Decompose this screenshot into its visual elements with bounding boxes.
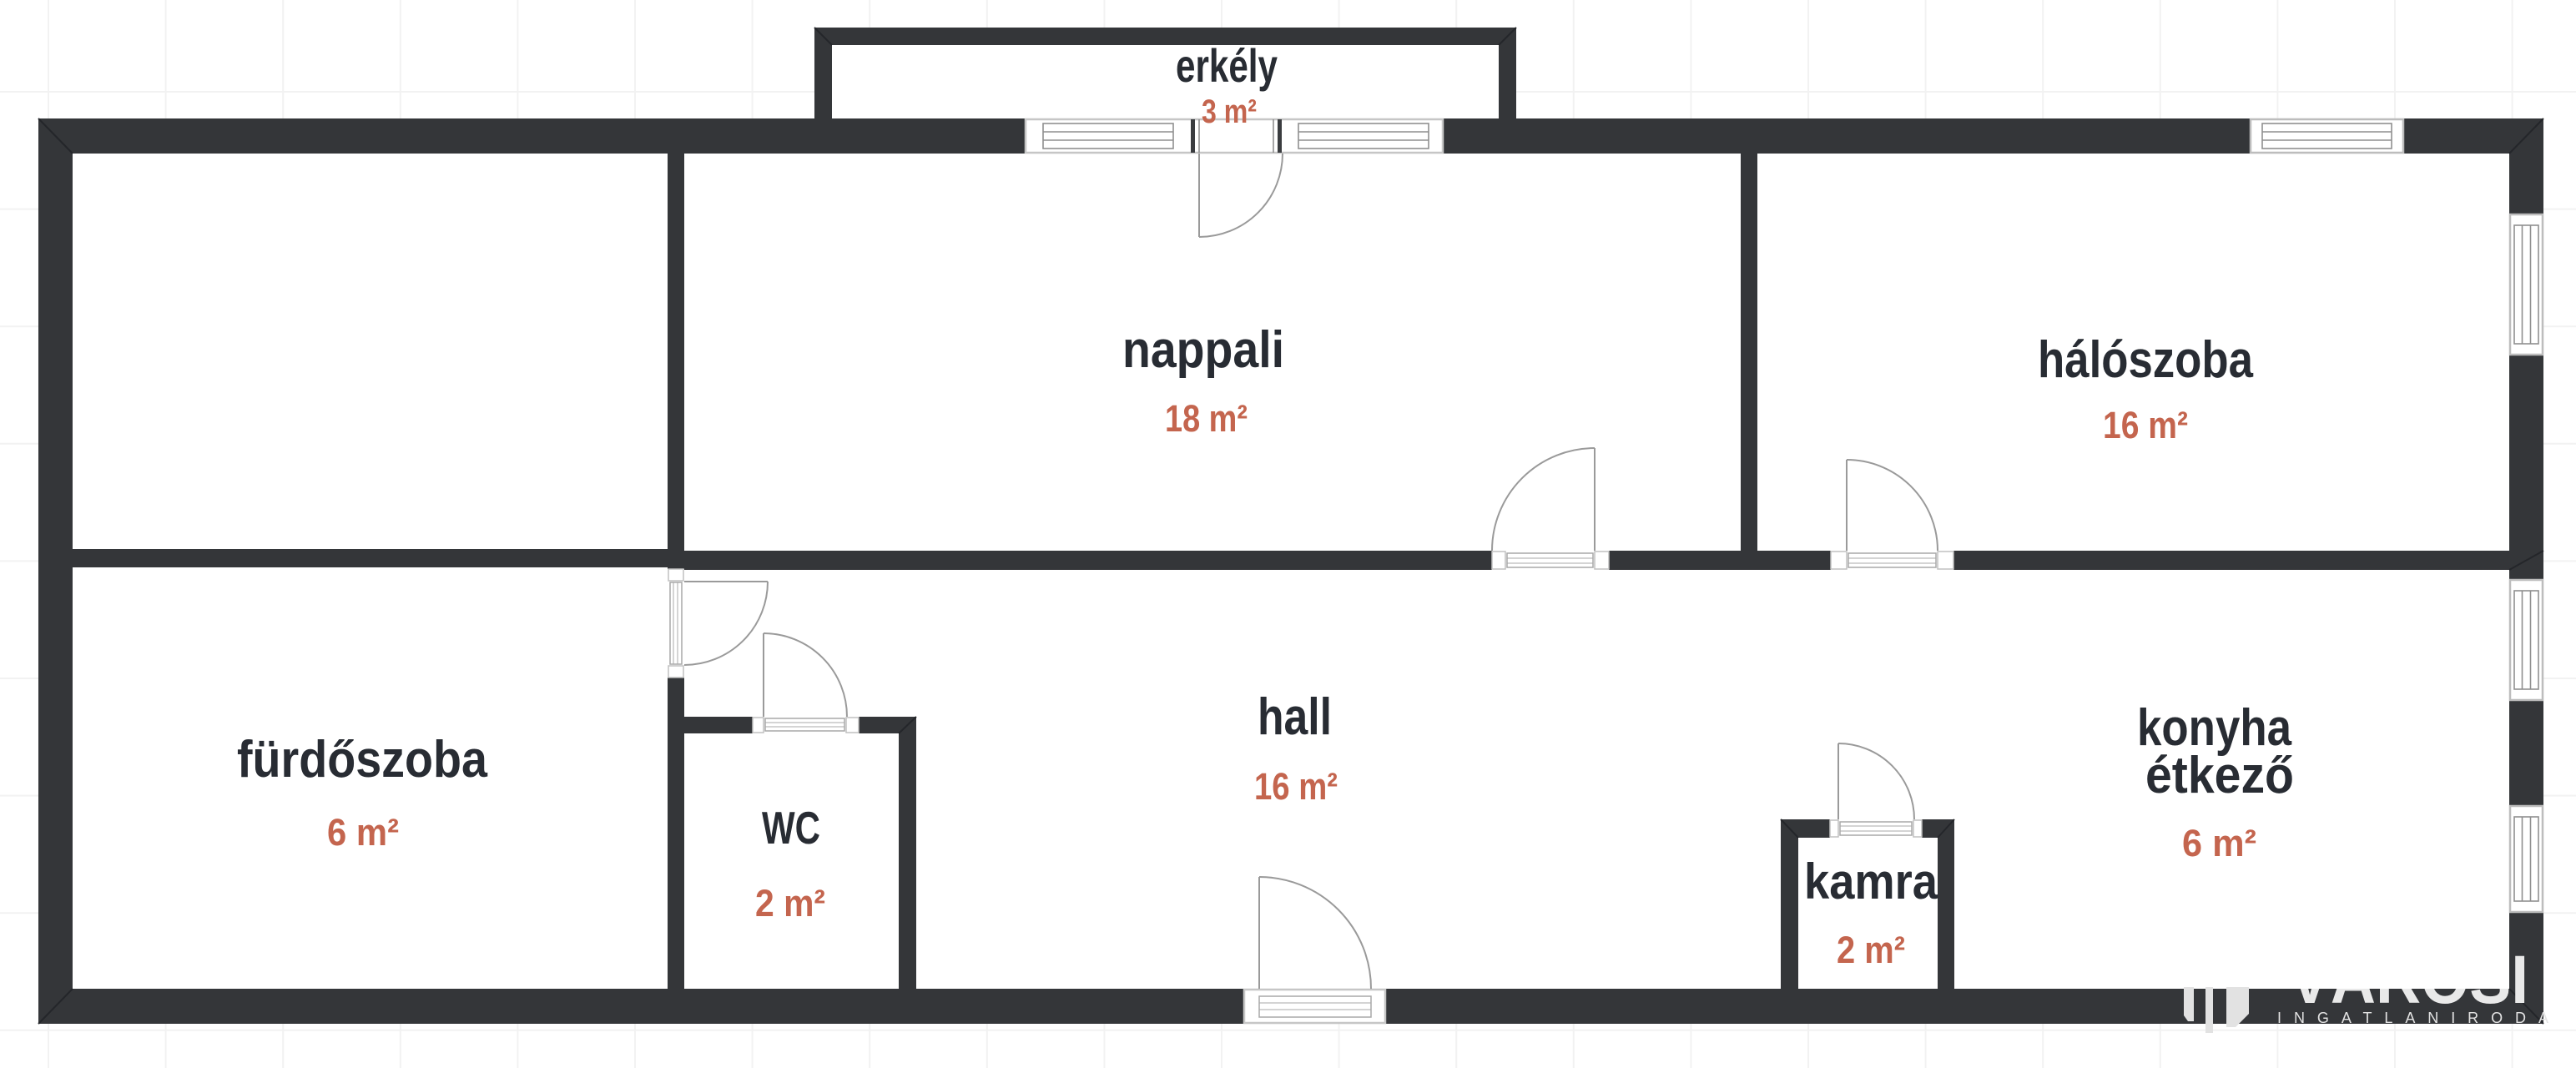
svg-text:18 m²: 18 m² bbox=[1165, 397, 1248, 440]
svg-text:kamra: kamra bbox=[1804, 854, 1938, 909]
svg-text:3 m²: 3 m² bbox=[1202, 93, 1257, 130]
svg-text:hall: hall bbox=[1258, 688, 1332, 746]
svg-text:étkező: étkező bbox=[2145, 747, 2294, 804]
svg-text:erkély: erkély bbox=[1176, 39, 1278, 92]
svg-text:fürdőszoba: fürdőszoba bbox=[237, 731, 487, 788]
svg-text:2 m²: 2 m² bbox=[1837, 929, 1905, 971]
svg-text:6 m²: 6 m² bbox=[327, 811, 399, 854]
svg-text:WC: WC bbox=[762, 802, 820, 854]
svg-text:16 m²: 16 m² bbox=[2103, 404, 2188, 446]
svg-text:hálószoba: hálószoba bbox=[2038, 331, 2253, 389]
svg-text:2 m²: 2 m² bbox=[755, 882, 825, 924]
svg-text:6 m²: 6 m² bbox=[2182, 822, 2256, 864]
svg-text:16 m²: 16 m² bbox=[1254, 765, 1338, 808]
svg-text:nappali: nappali bbox=[1122, 321, 1284, 379]
